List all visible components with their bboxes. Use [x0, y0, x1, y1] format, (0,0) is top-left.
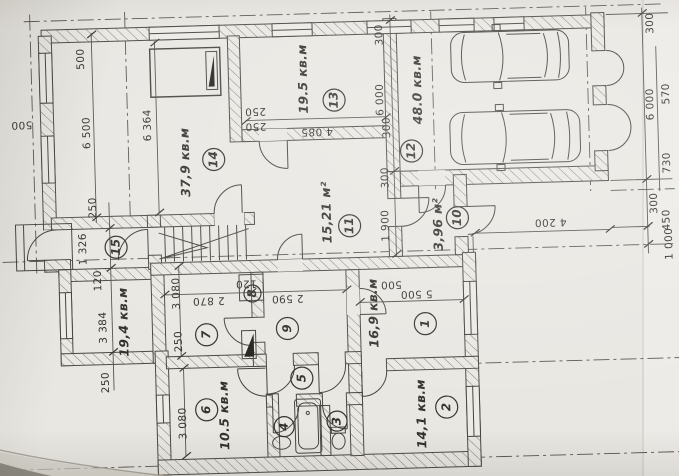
room-number: 7	[199, 330, 213, 339]
dim-label: 730	[661, 152, 674, 174]
window-icon	[39, 53, 53, 103]
room-number-badge: 1	[414, 312, 437, 335]
room-area-label: 37,9 кв.м	[176, 127, 193, 197]
window-icon	[41, 136, 55, 183]
room-number: 12	[404, 142, 418, 159]
room-number-badge: 5	[291, 367, 314, 390]
axis-lines	[0, 0, 679, 476]
room-number: 11	[342, 217, 356, 234]
car-icon	[450, 23, 570, 90]
dim-label: 1 326	[77, 233, 90, 265]
room-number: 1	[418, 319, 432, 328]
dim-label: 6 500	[80, 117, 93, 149]
room-number: 13	[326, 92, 340, 109]
dim-label: 250	[245, 105, 267, 118]
dim-label: 3 080	[177, 407, 190, 439]
dim-label: 3 384	[97, 311, 110, 343]
garage-door-icon	[606, 50, 624, 85]
room-area-label: 16,9 кв.м	[365, 278, 382, 348]
floor-plan-drawing: 500 500 6 500 6 364 250 250 4 085 300 6 …	[0, 0, 679, 476]
door-icon	[362, 371, 388, 397]
dim-label: 3 080	[170, 277, 183, 309]
room-number: 6	[199, 405, 213, 414]
boiler-icon	[150, 47, 221, 97]
room-number-badge: 2	[435, 396, 458, 419]
room-number-badge: 6	[195, 398, 218, 421]
dim-label: 300	[648, 192, 661, 214]
room-area-label: 15,21 м²	[318, 181, 335, 244]
dim-label: 2 590	[271, 292, 303, 305]
dim-label: 300	[373, 24, 386, 46]
room-number: 10	[450, 209, 464, 226]
dim-label: 500	[75, 48, 88, 70]
room-area-label: 19,4 кв.м	[115, 287, 132, 357]
window-icon	[59, 293, 72, 339]
floor-plan-photo: 500 500 6 500 6 364 250 250 4 085 300 6 …	[0, 0, 679, 476]
door-icon	[238, 368, 267, 397]
dim-label: 500	[11, 119, 33, 132]
room-area-label: 48.0 кв.м	[408, 55, 425, 126]
dim-label: 250	[87, 197, 100, 219]
door-icon	[259, 140, 288, 169]
room-number-badge: 12	[400, 140, 423, 163]
dim-label: 4 200	[534, 216, 566, 229]
door-icon	[318, 364, 346, 393]
room-number-badge: 3	[327, 411, 348, 432]
room-number: 2	[439, 403, 453, 412]
paper-curl	[0, 450, 165, 476]
room-number-badge: 7	[195, 323, 218, 346]
dim-label: 300	[381, 117, 394, 139]
dim-label: 5 500	[400, 287, 432, 300]
dim-label: 6 364	[141, 109, 154, 141]
room-area-label: 19.5 кв.м	[294, 44, 311, 114]
room-number-badge: 13	[323, 89, 346, 112]
room-area-label: 14,1 кв.м	[412, 379, 429, 449]
room-number-badge: 9	[276, 317, 299, 340]
window-icon	[272, 23, 312, 37]
room-number-badge: 15	[105, 236, 128, 259]
door-icon	[213, 185, 242, 214]
room-number: 14	[206, 151, 220, 168]
room-number: 3	[329, 417, 343, 426]
dim-label: 2 870	[192, 294, 224, 307]
car-icon	[449, 102, 581, 172]
door-icon	[224, 317, 253, 346]
dim-label: 450	[660, 209, 673, 231]
room-number: 5	[294, 374, 308, 383]
dim-label: 4 085	[301, 125, 333, 138]
room-number: 8	[245, 289, 259, 298]
dim-label: 250	[100, 372, 113, 394]
dim-label: 300	[379, 167, 392, 189]
room-number: 4	[277, 422, 291, 432]
window-icon	[466, 386, 480, 436]
dim-label: 250	[245, 120, 267, 133]
room-number: 15	[108, 239, 122, 256]
window-icon	[156, 395, 170, 423]
room-number-badge: 11	[338, 214, 361, 237]
dim-label: 6 000	[374, 84, 387, 116]
bathtub-icon	[294, 399, 321, 454]
window-icon	[494, 17, 524, 31]
door-icon	[467, 206, 496, 235]
room-number-badge: 10	[446, 206, 469, 229]
dim-label: 250	[172, 331, 185, 353]
room-number-badge: 14	[202, 148, 225, 171]
window-icon	[463, 281, 477, 334]
room-area-label: 10.5 кв.м	[215, 380, 232, 450]
window-icon	[439, 18, 474, 32]
dim-label: 570	[660, 83, 673, 105]
window-icon	[149, 25, 219, 40]
dim-label: 1 000	[663, 228, 676, 260]
dim-label: 6 000	[644, 88, 657, 120]
dim-label: 300	[644, 12, 657, 34]
room-number-badge: 4	[274, 416, 295, 437]
room-area-label: 3,96 м²	[429, 197, 445, 251]
windows	[38, 17, 535, 448]
dim-label: 120	[92, 270, 105, 292]
door-icon	[277, 234, 303, 260]
room-number: 9	[280, 324, 294, 333]
dim-label: 500	[380, 278, 402, 291]
dim-label: 1 900	[379, 210, 392, 242]
garage-door-icon	[607, 104, 631, 151]
